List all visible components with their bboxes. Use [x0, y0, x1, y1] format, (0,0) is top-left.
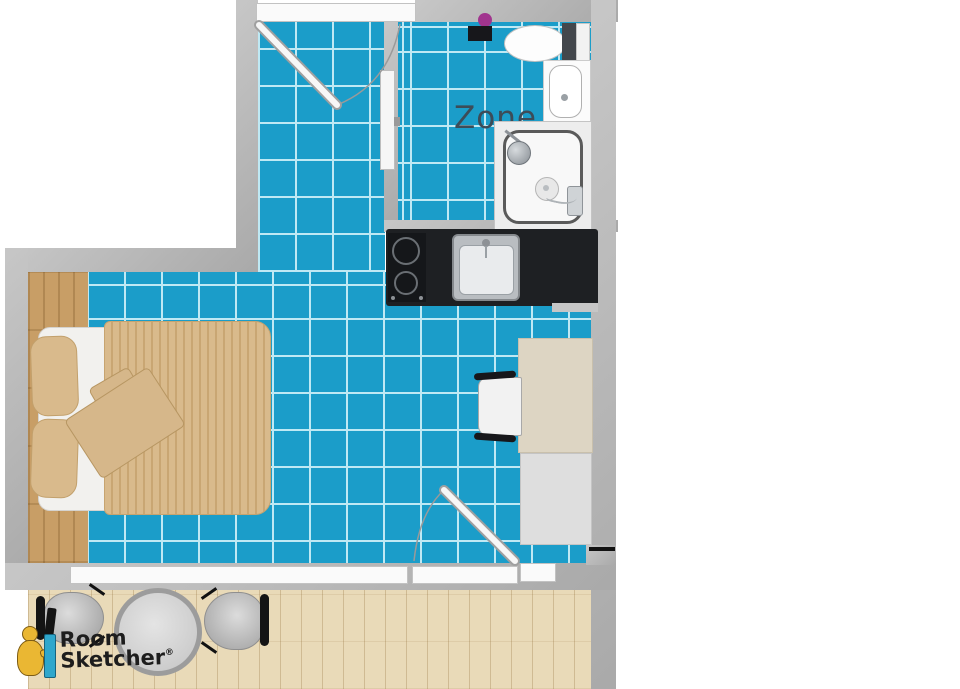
toilet-accessory-box[interactable] [468, 26, 492, 41]
hall-floor [258, 22, 385, 272]
toilet-bowl [504, 25, 566, 62]
wall-left [5, 248, 28, 590]
wall-hall-left [236, 0, 258, 272]
counter-end-band [552, 303, 598, 312]
balcony-door-threshold [412, 566, 518, 584]
bathroom-sink-drain [561, 94, 568, 101]
bed[interactable] [31, 321, 272, 517]
toilet[interactable] [504, 22, 590, 65]
patio-chair-right-shell [204, 592, 264, 650]
cooktop [388, 233, 426, 302]
patio-chair-left-leg-top [89, 583, 105, 596]
cooktop-burner-large [392, 237, 420, 265]
registered-mark: ® [165, 648, 174, 658]
cooktop-dot-right [419, 296, 423, 300]
kitchen-sink [452, 234, 520, 301]
wall-main-top [5, 248, 255, 272]
kitchen-counter[interactable] [386, 229, 598, 306]
toilet-cistern [576, 23, 590, 64]
pencil-body [44, 634, 56, 678]
sliding-door[interactable] [380, 70, 395, 170]
patio-chair-right[interactable] [198, 588, 270, 654]
bathroom-sink[interactable] [543, 60, 591, 123]
purple-accent-dot[interactable] [478, 13, 492, 27]
desk[interactable] [518, 338, 593, 453]
brand-line2: Sketcher [60, 645, 166, 673]
pencil-tip [44, 608, 56, 637]
pillow-top [30, 335, 80, 417]
bottom-window-right-segment [520, 563, 556, 582]
wall-top [415, 0, 618, 22]
roomsketcher-watermark: Room Sketcher® [14, 604, 164, 686]
bottom-window [70, 566, 408, 584]
floorplan-canvas: Zone [0, 0, 960, 689]
brand-text: Room Sketcher® [59, 626, 164, 672]
shower[interactable] [494, 121, 592, 232]
kitchen-faucet-stem [485, 246, 487, 258]
mascot-body [17, 640, 44, 676]
shower-head-icon [507, 141, 531, 165]
desk-chair-seat [478, 377, 522, 436]
cooktop-dot-left [391, 296, 395, 300]
desk-chair[interactable] [472, 371, 524, 443]
wardrobe-cabinet[interactable] [520, 453, 592, 545]
wall-section-marker [589, 547, 615, 551]
bathroom-sink-basin [549, 65, 582, 118]
cooktop-burner-small [394, 271, 418, 295]
entry-door-sill [256, 3, 416, 22]
sliding-door-handle [394, 117, 400, 126]
toilet-tank [562, 23, 576, 64]
patio-chair-right-armrest [260, 594, 269, 646]
